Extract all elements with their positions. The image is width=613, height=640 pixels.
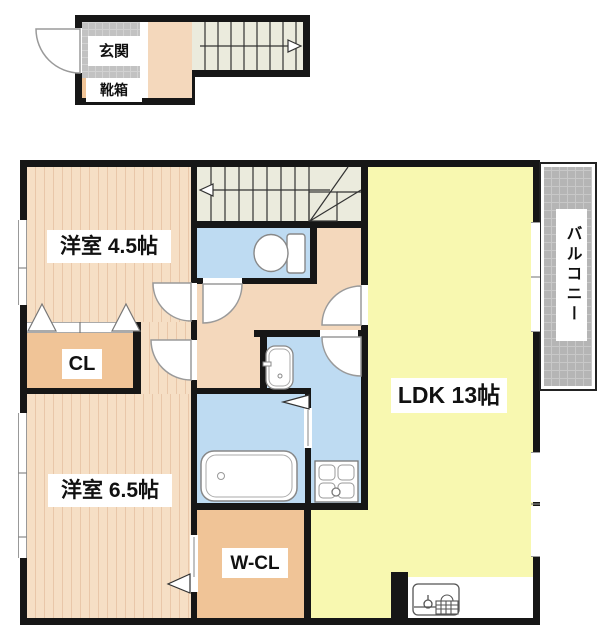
closet-folding-door-strip bbox=[27, 322, 133, 333]
ldk-west-wall bbox=[361, 167, 368, 510]
entrance-hall-floor bbox=[148, 22, 192, 98]
ldk-window-lower bbox=[531, 506, 540, 557]
ldk-window-upper bbox=[531, 452, 540, 502]
entrance-door-icon bbox=[36, 29, 80, 73]
closet-right-wall bbox=[133, 322, 141, 394]
entrance-door-opening bbox=[75, 28, 82, 73]
stairs-bottom-wall bbox=[197, 221, 368, 228]
washroom-left-wall bbox=[260, 330, 267, 394]
room45-window bbox=[18, 220, 27, 305]
stairs-second-floor bbox=[197, 167, 361, 221]
toilet-room bbox=[197, 228, 310, 278]
stairs-first-floor bbox=[192, 22, 303, 70]
kutsubako-label: 靴箱 bbox=[86, 78, 142, 102]
wet-area-bottom-wall bbox=[191, 503, 368, 510]
ldk-label: LDK 13帖 bbox=[391, 378, 507, 413]
kitchen-counter bbox=[408, 577, 533, 618]
room45-door-opening bbox=[191, 283, 197, 320]
wcl-label: W-CL bbox=[222, 548, 288, 578]
bath-sliding-door bbox=[304, 408, 312, 448]
cl-label: CL bbox=[62, 349, 102, 379]
balcony-sliding-window bbox=[531, 222, 540, 332]
washroom-door-opening bbox=[320, 330, 358, 337]
room65-window bbox=[18, 413, 27, 558]
wcl-sliding-door-opening bbox=[190, 535, 198, 592]
washroom bbox=[267, 337, 361, 390]
room45-label: 洋室 4.5帖 bbox=[47, 230, 171, 263]
balcony-label: バルコニー bbox=[556, 209, 587, 341]
hallway bbox=[197, 284, 260, 394]
floor-plan: 玄関 靴箱 洋室 4.5帖 CL 洋室 6.5帖 W-CL LDK 13帖 バル… bbox=[0, 0, 613, 640]
toilet-right-wall bbox=[310, 228, 317, 278]
room65-door-opening bbox=[191, 340, 197, 380]
ldk-floor-extension bbox=[311, 510, 368, 618]
wcl-right-wall bbox=[304, 510, 311, 618]
room-6_5-connector-floor bbox=[141, 322, 191, 394]
room65-label: 洋室 6.5帖 bbox=[48, 474, 172, 507]
washroom-lower bbox=[311, 390, 361, 503]
genkan-label: 玄関 bbox=[88, 36, 140, 66]
kitchen-wall-stub bbox=[391, 572, 408, 618]
bathroom bbox=[197, 394, 305, 503]
ldk-door-opening bbox=[361, 285, 368, 325]
